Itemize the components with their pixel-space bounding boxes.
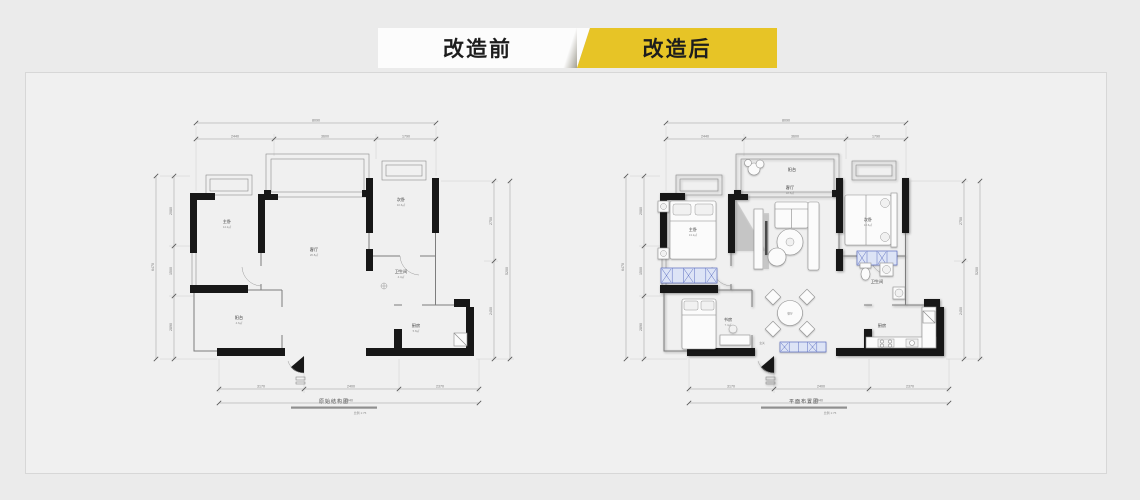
svg-text:阳台: 阳台 (235, 314, 243, 321)
svg-text:8090: 8090 (782, 119, 790, 123)
svg-text:比例 1:75: 比例 1:75 (824, 410, 837, 415)
svg-text:3170: 3170 (257, 385, 265, 389)
svg-text:10.6㎡: 10.6㎡ (397, 203, 405, 207)
wardrobe-master (661, 268, 717, 283)
svg-text:3600: 3600 (791, 135, 799, 139)
scale-bar (291, 407, 377, 409)
svg-text:26.8㎡: 26.8㎡ (310, 253, 318, 257)
svg-text:2890: 2890 (639, 323, 643, 331)
svg-text:主卧: 主卧 (223, 218, 231, 225)
dimensions-layer (624, 121, 984, 405)
plant (745, 160, 765, 176)
svg-text:1790: 1790 (402, 135, 410, 139)
toilet (860, 263, 871, 280)
svg-text:原始结构图: 原始结构图 (319, 398, 349, 405)
fridge (923, 311, 935, 323)
dimension-labels: 8090 2440 3600 1790 6470 2080 1500 2890 … (151, 119, 509, 403)
tab-after-label: 改造后 (643, 33, 712, 63)
svg-text:2080: 2080 (639, 207, 643, 215)
tab-after-renovation[interactable]: 改造后 (577, 28, 777, 68)
tv (765, 221, 768, 255)
svg-text:2890: 2890 (169, 323, 173, 331)
comparison-panel: 8090 2440 3600 1790 6470 2080 1500 2890 … (25, 72, 1107, 474)
nightstand (658, 201, 669, 212)
svg-text:2450: 2450 (489, 307, 493, 315)
svg-text:客厅: 客厅 (310, 246, 318, 253)
svg-text:5200: 5200 (505, 267, 509, 275)
svg-text:2450: 2450 (959, 307, 963, 315)
svg-text:2440: 2440 (701, 135, 709, 139)
svg-text:1790: 1790 (872, 135, 880, 139)
kitchen-sink (906, 339, 918, 347)
svg-text:2400: 2400 (347, 385, 355, 389)
svg-text:2370: 2370 (436, 385, 444, 389)
svg-text:2750: 2750 (489, 217, 493, 225)
washing-machine (893, 287, 905, 299)
svg-text:2440: 2440 (231, 135, 239, 139)
svg-text:次卧: 次卧 (864, 216, 872, 223)
svg-text:客厅: 客厅 (786, 184, 794, 191)
tab-before-renovation[interactable]: 改造前 (378, 28, 577, 68)
svg-text:5200: 5200 (975, 267, 979, 275)
floorplan-before: 8090 2440 3600 1790 6470 2080 1500 2890 … (144, 101, 524, 421)
svg-text:18.5㎡: 18.5㎡ (786, 191, 794, 195)
walls-layer (190, 154, 474, 384)
svg-text:厨房: 厨房 (412, 322, 420, 329)
scale-bar (761, 407, 847, 409)
svg-text:平面布置图: 平面布置图 (789, 398, 819, 405)
svg-text:玄关: 玄关 (759, 341, 765, 345)
svg-text:3600: 3600 (321, 135, 329, 139)
room-labels: 主卧 14.2㎡ 客厅 26.8㎡ 次卧 10.6㎡ 卫生间 4.3㎡ 厨房 5… (223, 196, 420, 333)
tab-divider-notch (577, 28, 590, 68)
svg-text:7.4㎡: 7.4㎡ (725, 323, 732, 327)
svg-text:阳台: 阳台 (788, 166, 796, 173)
shoe-cabinet (780, 342, 826, 352)
svg-text:6470: 6470 (151, 263, 155, 271)
floorplan-after: 8090 2440 3600 1790 6470 2080 1500 2890 … (614, 101, 994, 421)
svg-text:2080: 2080 (169, 207, 173, 215)
dimensions-layer (154, 121, 514, 405)
svg-text:2400: 2400 (817, 385, 825, 389)
tab-bar: 改造前 改造后 (0, 28, 1140, 68)
svg-text:次卧: 次卧 (397, 196, 405, 203)
svg-text:卫生间: 卫生间 (395, 268, 408, 275)
svg-text:5.8㎡: 5.8㎡ (413, 329, 420, 333)
svg-text:3170: 3170 (727, 385, 735, 389)
svg-text:14.2㎡: 14.2㎡ (223, 225, 231, 229)
svg-text:2750: 2750 (959, 217, 963, 225)
svg-text:6470: 6470 (621, 263, 625, 271)
svg-text:13.2㎡: 13.2㎡ (689, 233, 697, 237)
fixtures-layer (381, 283, 467, 346)
svg-text:10.6㎡: 10.6㎡ (864, 223, 872, 227)
svg-text:餐厅: 餐厅 (787, 312, 793, 316)
bed-study (682, 299, 716, 349)
svg-text:4.3㎡: 4.3㎡ (398, 275, 405, 279)
desk (720, 325, 750, 345)
stove (878, 339, 894, 347)
tv-cabinet (754, 209, 763, 269)
tab-before-label: 改造前 (443, 33, 512, 63)
svg-text:1500: 1500 (169, 267, 173, 275)
svg-text:主卧: 主卧 (689, 226, 697, 233)
svg-text:比例 1:75: 比例 1:75 (354, 410, 367, 415)
svg-text:1500: 1500 (639, 267, 643, 275)
dimension-labels: 8090 2440 3600 1790 6470 2080 1500 2890 … (621, 119, 979, 403)
furniture-layer (658, 160, 936, 353)
svg-text:卫生间: 卫生间 (871, 278, 884, 285)
coffee-table (768, 229, 803, 266)
nightstand (658, 248, 669, 259)
bath-sink (880, 263, 893, 276)
svg-text:8090: 8090 (312, 119, 320, 123)
plan-caption: 平面布置图 比例 1:75 (761, 398, 847, 415)
svg-text:书房: 书房 (724, 316, 732, 323)
svg-text:4.6㎡: 4.6㎡ (236, 321, 243, 325)
svg-text:厨房: 厨房 (878, 322, 886, 329)
svg-text:2370: 2370 (906, 385, 914, 389)
plan-caption: 原始结构图 比例 1:75 (291, 398, 377, 415)
